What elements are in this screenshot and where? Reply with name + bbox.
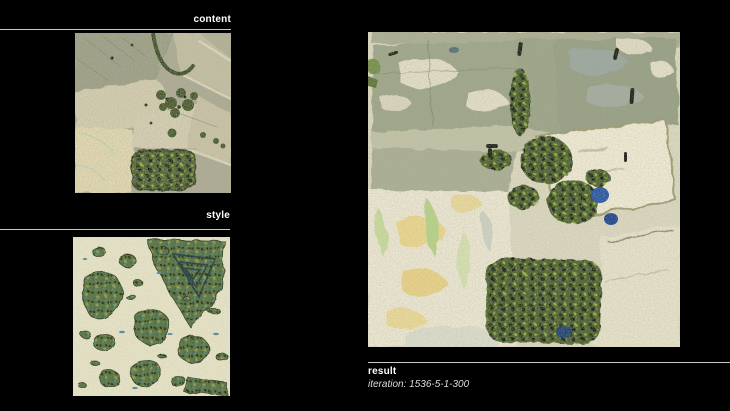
style-image-graphic <box>73 237 230 396</box>
content-divider <box>0 29 231 30</box>
canvas: content <box>0 0 730 411</box>
content-label: content <box>0 14 231 26</box>
content-image-graphic <box>75 33 231 193</box>
style-image <box>73 237 230 396</box>
result-image <box>368 32 680 347</box>
style-divider <box>0 229 230 230</box>
style-label: style <box>0 210 230 222</box>
content-image <box>75 33 231 193</box>
result-iteration-text: iteration: 1536-5-1-300 <box>368 379 469 391</box>
result-divider <box>368 362 730 363</box>
result-image-graphic <box>368 32 680 347</box>
result-label: result <box>368 366 396 378</box>
